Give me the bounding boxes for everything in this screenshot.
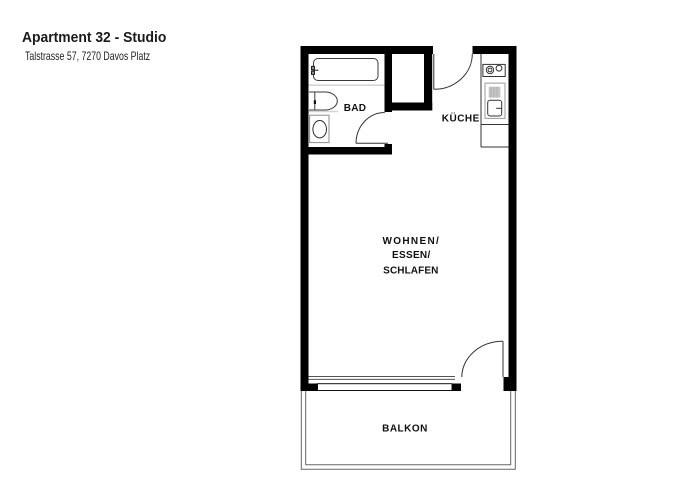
svg-text:WOHNEN/: WOHNEN/ [382, 236, 440, 247]
svg-text:BAD: BAD [344, 103, 367, 114]
svg-text:BALKON: BALKON [382, 424, 428, 435]
svg-text:KÜCHE: KÜCHE [442, 111, 480, 124]
svg-text:SCHLAFEN: SCHLAFEN [383, 265, 438, 276]
svg-text:ESSEN/: ESSEN/ [392, 250, 430, 261]
